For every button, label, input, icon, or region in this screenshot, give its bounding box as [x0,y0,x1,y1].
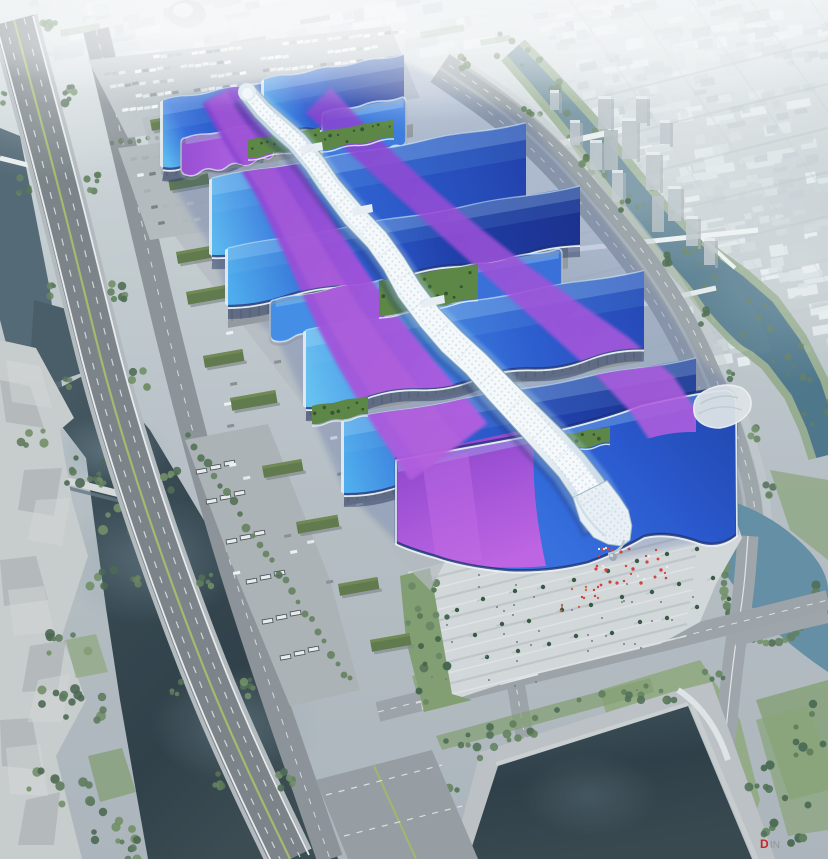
svg-text:D: D [760,837,769,851]
svg-text:IN: IN [770,840,780,851]
